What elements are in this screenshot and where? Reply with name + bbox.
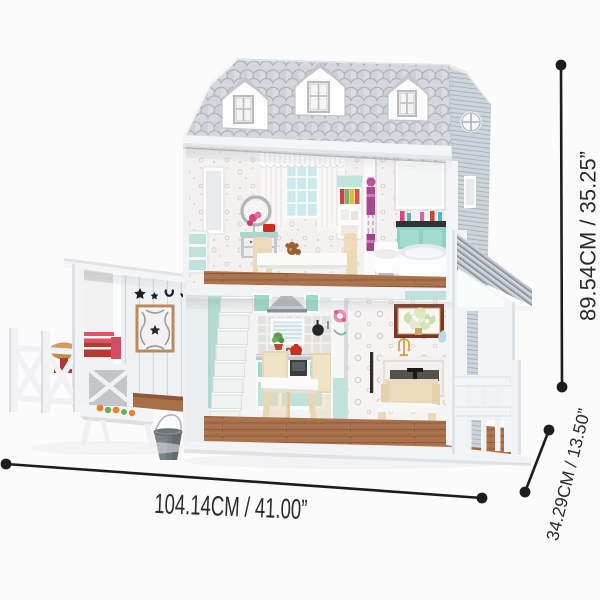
svg-text:89.54CM / 35.25”: 89.54CM / 35.25” <box>576 151 600 321</box>
svg-text:104.14CM / 41.00”: 104.14CM / 41.00” <box>154 489 308 526</box>
